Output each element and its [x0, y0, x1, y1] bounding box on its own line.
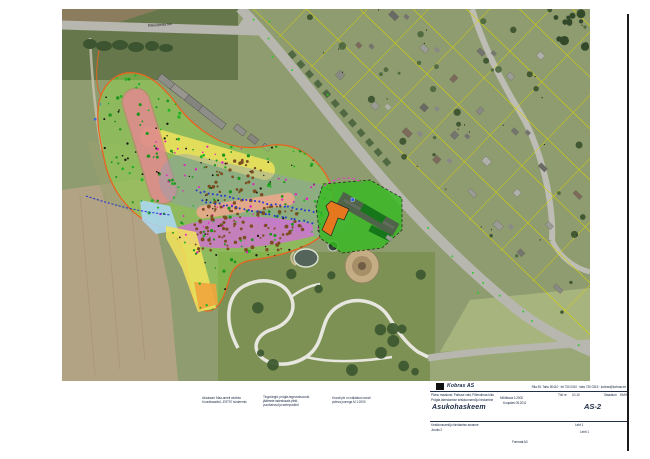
- note-line: puurkaevud ja seirepunktid: [263, 403, 329, 407]
- project-line-1: Pärnu maakond, Paikuse vald, Põlendmaa k…: [431, 393, 551, 397]
- client-line-2: Joonis 2: [431, 428, 551, 432]
- facility-blue-marker: [351, 198, 354, 201]
- pond: [294, 249, 318, 267]
- work-no-value: 10-10: [572, 393, 580, 397]
- blue-marker-2: [94, 118, 96, 120]
- map-note-1: Aluskaart: Maa-ameti ortofoto Koordinaad…: [202, 396, 258, 404]
- company-name: Kobras AS: [447, 383, 474, 389]
- round-mound: [345, 249, 379, 283]
- drawing-number: AS-2: [584, 402, 601, 411]
- date-label: Kuupäev 05.2011: [503, 401, 526, 405]
- company-logo: [436, 383, 444, 390]
- drawing-sheet: Põlendmaa tee Aluskaart: Maa-ameti ortof…: [0, 0, 650, 459]
- sheet-border-right: [627, 14, 629, 451]
- sheets-total: Lehti 1: [580, 430, 589, 434]
- client-line-1: Keskkonnamõju hindamise aruanne: [431, 423, 551, 427]
- stage-value: KMH: [620, 393, 627, 397]
- sheet-title: Asukohaskeem: [432, 404, 486, 411]
- stage-label: Staadium: [604, 393, 617, 397]
- note-line: Koordinaadid L-EST97 süsteemis: [202, 400, 258, 404]
- scale-label: Mõõtkava 1:2000: [500, 396, 523, 400]
- sheet-number: Leht 1: [575, 423, 583, 427]
- map-note-2: Tingmärgid: prügila tegevustsoonid, jäät…: [263, 395, 329, 407]
- project-line-2: Prügila laiendamise keskkonnamõju hindam…: [431, 398, 551, 402]
- map-note-3: Krundi piir on näidatud oranži pideva jo…: [332, 396, 406, 404]
- note-line: pideva joonega M 1:2000: [332, 400, 406, 404]
- work-no-label: Töö nr: [558, 393, 567, 397]
- format-label: Formaat A3: [512, 440, 527, 444]
- company-address: Riia 35, Tartu 50410 · tel 730 0310 · fa…: [476, 385, 626, 389]
